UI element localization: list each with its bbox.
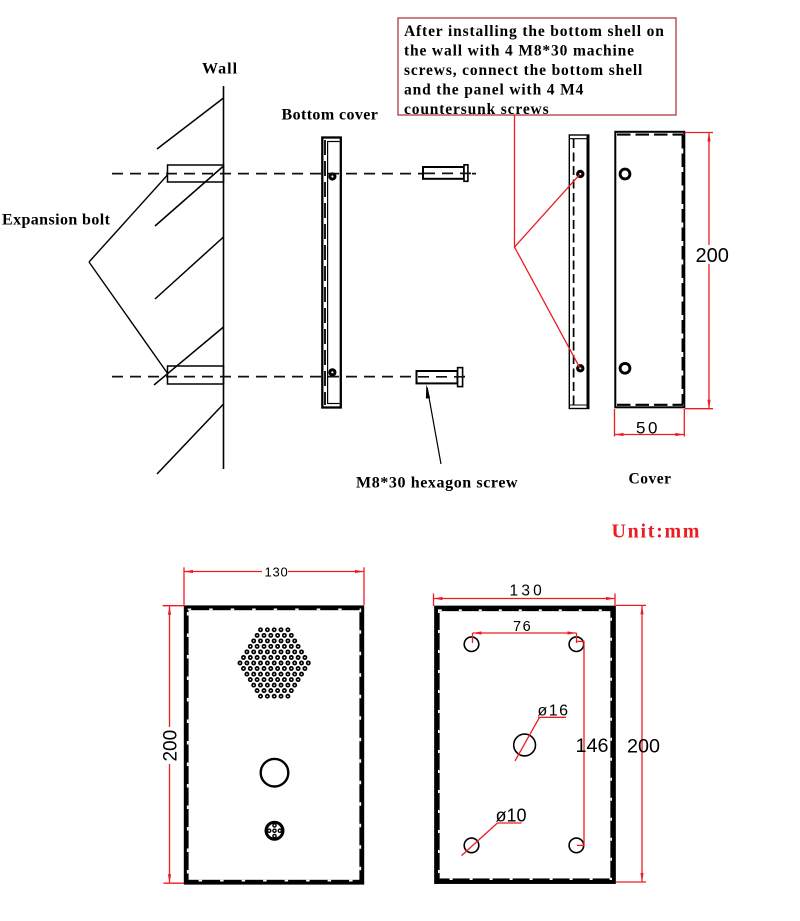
- svg-text:130: 130: [510, 583, 545, 600]
- svg-text:and the panel with 4 M4: and the panel with 4 M4: [404, 82, 584, 99]
- svg-text:countersunk screws: countersunk screws: [404, 101, 549, 118]
- svg-text:screws, connect the bottom she: screws, connect the bottom shell: [404, 62, 643, 79]
- svg-text:After installing the bottom sh: After installing the bottom shell on: [404, 23, 665, 40]
- svg-text:Wall: Wall: [202, 61, 238, 78]
- svg-text:146: 146: [576, 735, 609, 757]
- svg-text:200: 200: [161, 730, 182, 762]
- svg-text:Unit:mm: Unit:mm: [612, 521, 702, 543]
- svg-text:76: 76: [513, 619, 532, 635]
- svg-text:200: 200: [627, 735, 660, 757]
- svg-text:130: 130: [265, 565, 289, 580]
- svg-text:Cover: Cover: [629, 471, 672, 488]
- svg-text:200: 200: [696, 245, 729, 267]
- svg-text:Expansion bolt: Expansion bolt: [2, 212, 111, 229]
- svg-text:M8*30 hexagon screw: M8*30 hexagon screw: [356, 475, 518, 492]
- svg-text:Bottom cover: Bottom cover: [282, 107, 379, 124]
- svg-text:50: 50: [636, 419, 660, 438]
- svg-text:the wall with 4 M8*30 machine: the wall with 4 M8*30 machine: [404, 43, 635, 60]
